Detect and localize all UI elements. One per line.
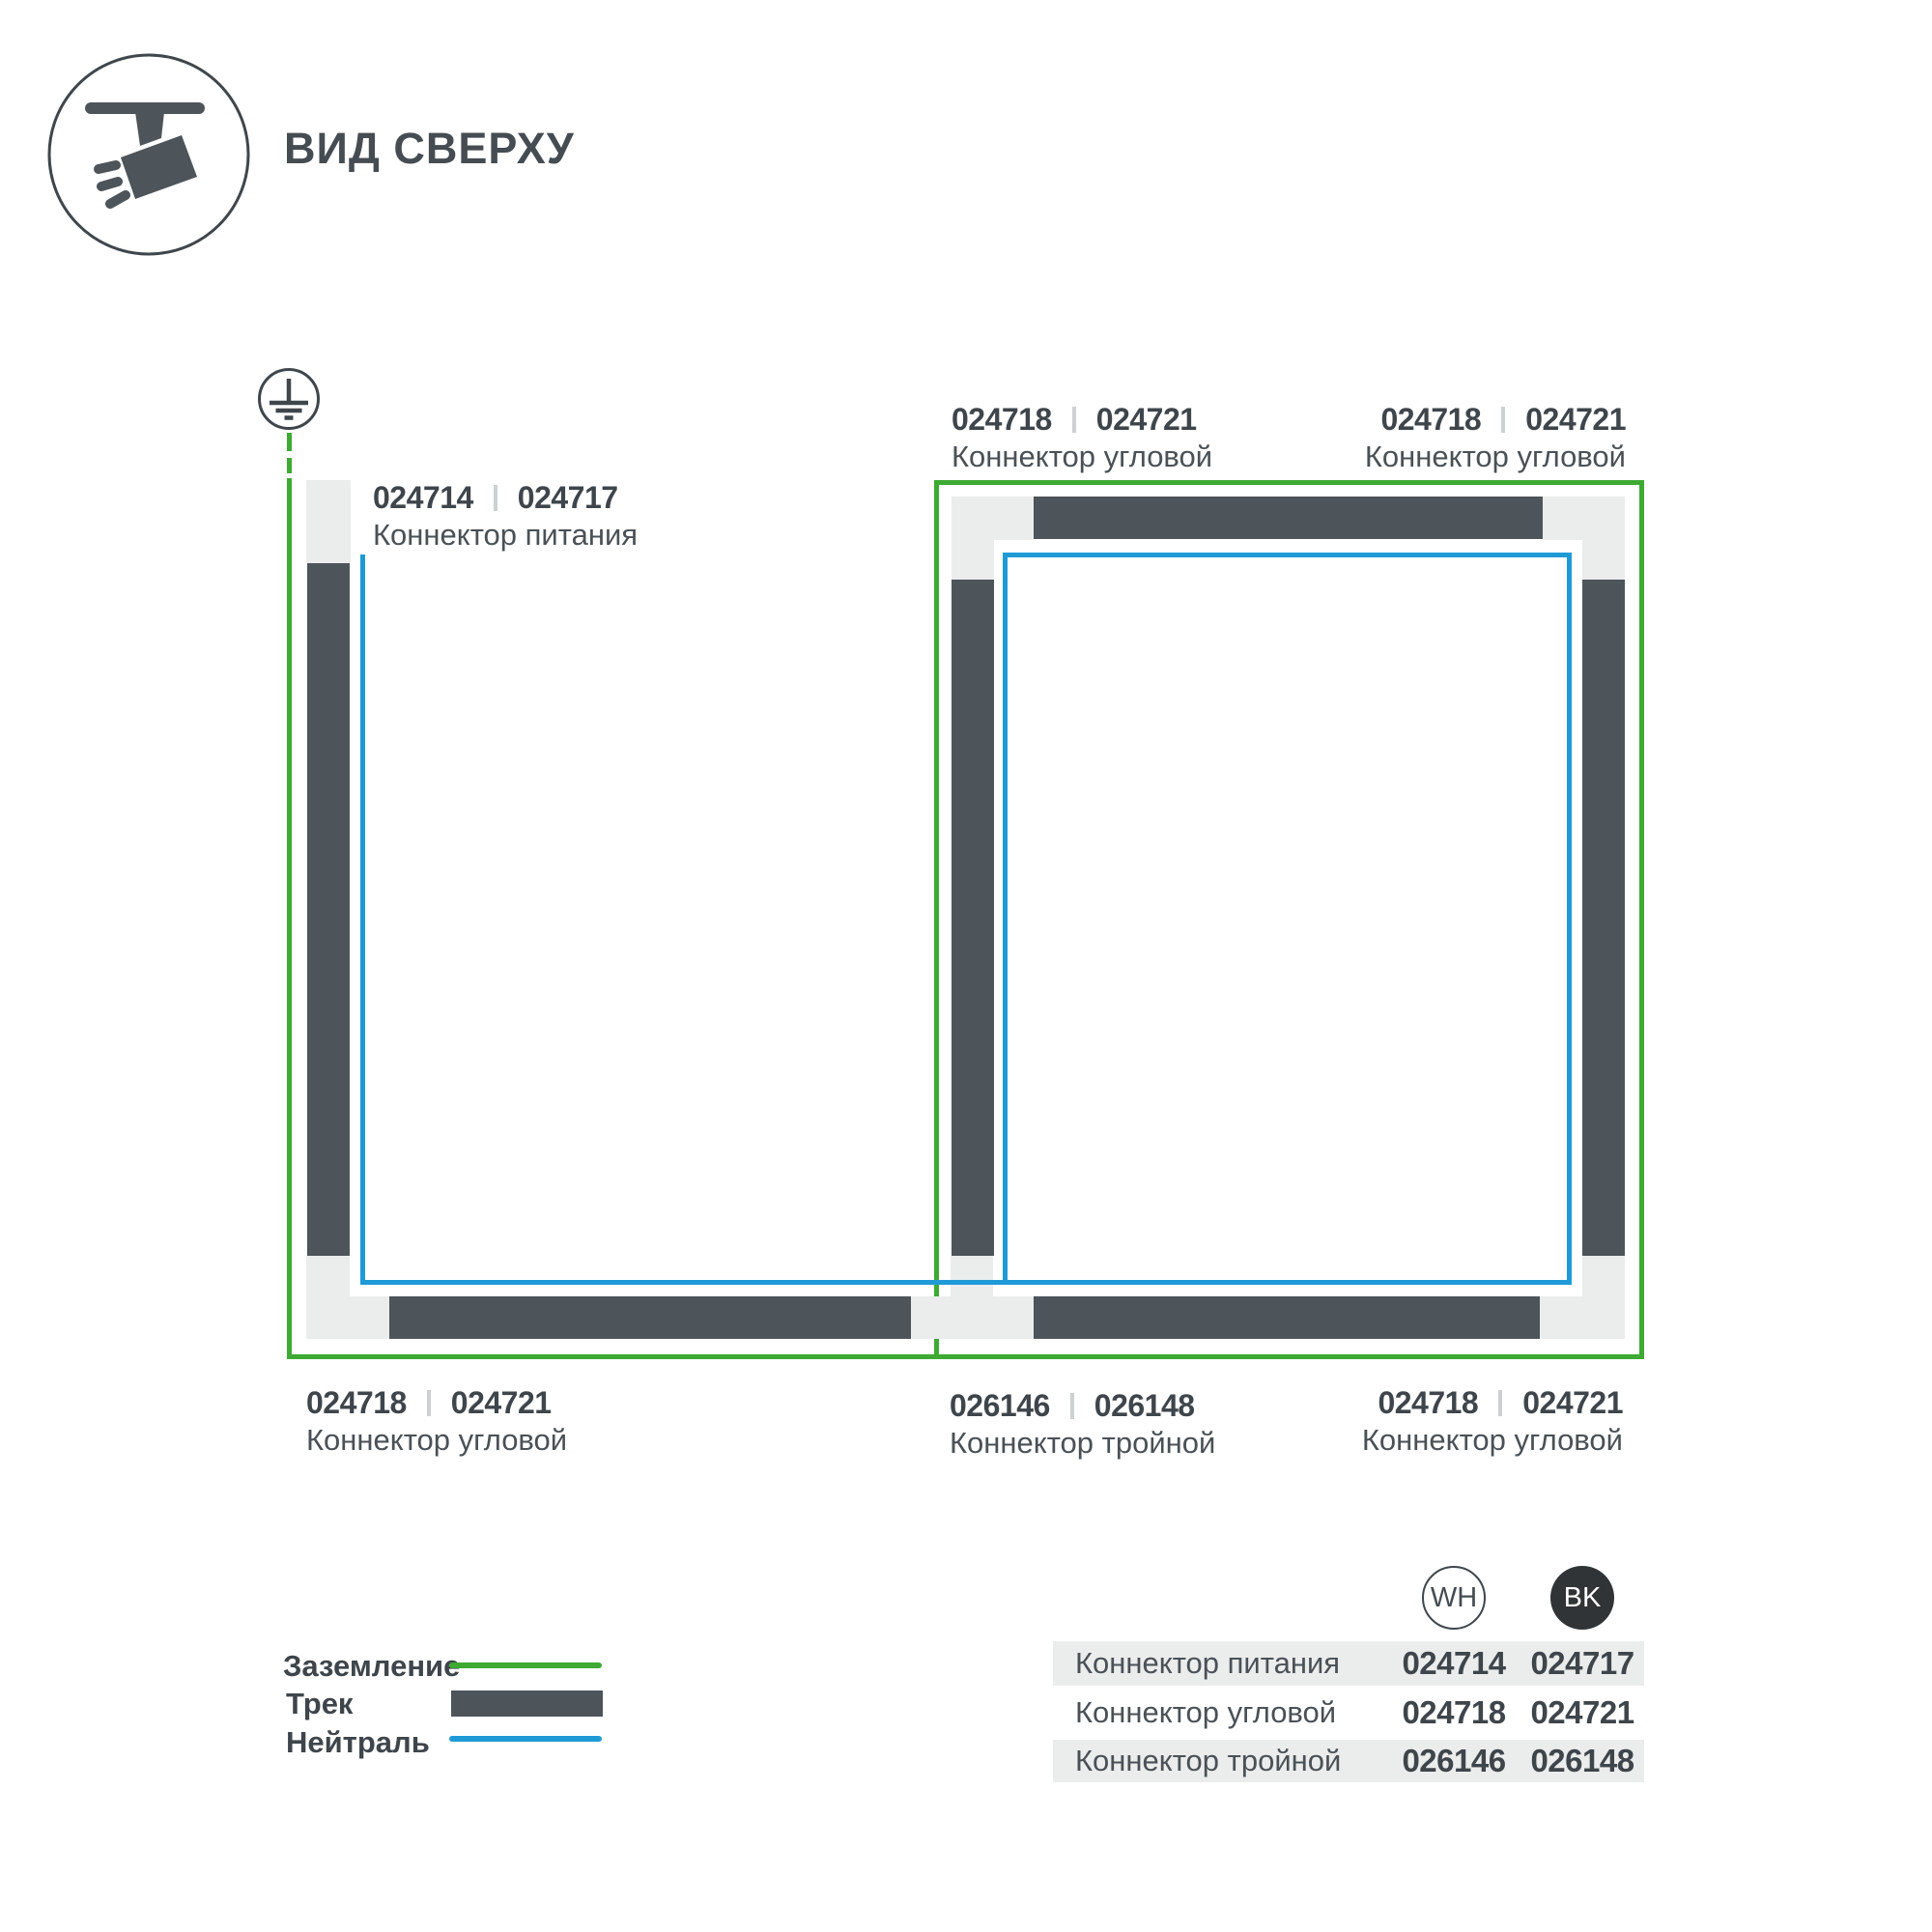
label-name: Коннектор угловой xyxy=(952,440,1212,474)
row-wh-code: 024718 xyxy=(1386,1694,1521,1731)
label-codes: 024714 024717 xyxy=(373,481,638,514)
table-row: Коннектор питания 024714 024717 xyxy=(1053,1641,1644,1686)
legend-swatch-track xyxy=(451,1690,603,1717)
color-wh-badge: WH xyxy=(1422,1566,1486,1630)
table-row: Коннектор угловой 024718 024721 xyxy=(1053,1689,1644,1737)
row-wh-code: 024714 xyxy=(1386,1645,1521,1682)
page: ВИД СВЕРХУ 024714 0247 xyxy=(0,0,1932,1932)
label-name: Коннектор угловой xyxy=(1362,1423,1623,1458)
label-triple-connector: 026146 026148 Коннектор тройной xyxy=(950,1389,1215,1461)
code-bk: 024721 xyxy=(1522,1385,1623,1421)
code-bk: 024721 xyxy=(1525,402,1626,438)
track-right-vertical xyxy=(1582,580,1625,1256)
label-codes: 024718 024721 xyxy=(1365,403,1626,436)
label-corner-connector-bottom-right: 024718 024721 Коннектор угловой xyxy=(1362,1386,1623,1458)
label-name: Коннектор угловой xyxy=(1365,440,1626,474)
label-name: Коннектор питания xyxy=(373,518,638,553)
ground-icon xyxy=(257,367,321,431)
triple-connector-stub xyxy=(951,1256,993,1298)
code-divider xyxy=(1501,407,1505,433)
corner-connector-bottom-right-arm-v xyxy=(1582,1256,1625,1339)
table-row: Коннектор тройной 026146 026148 xyxy=(1053,1740,1644,1782)
label-codes: 026146 026148 xyxy=(950,1389,1215,1422)
code-wh: 024714 xyxy=(373,480,473,516)
triple-connector-bar xyxy=(911,1296,1034,1339)
corner-connector-bottom-left-arm-h xyxy=(306,1296,389,1339)
code-wh: 024718 xyxy=(952,402,1052,438)
color-bk-badge: BK xyxy=(1550,1566,1614,1630)
track-light-icon xyxy=(43,48,255,261)
color-bk-label: BK xyxy=(1564,1582,1602,1614)
track-bottom-left xyxy=(389,1296,911,1339)
label-codes: 024718 024721 xyxy=(306,1386,567,1419)
code-bk: 024721 xyxy=(451,1385,552,1421)
track-bottom-right xyxy=(1034,1296,1540,1339)
label-codes: 024718 024721 xyxy=(1362,1386,1623,1419)
page-title: ВИД СВЕРХУ xyxy=(284,124,575,174)
row-wh-code: 026146 xyxy=(1386,1743,1521,1779)
code-bk: 024721 xyxy=(1096,402,1197,438)
legend-swatch-neutral xyxy=(449,1736,602,1742)
ground-line-dash-1 xyxy=(287,433,292,451)
code-bk: 026148 xyxy=(1094,1388,1195,1424)
label-name: Коннектор тройной xyxy=(950,1426,1215,1461)
code-wh: 026146 xyxy=(950,1388,1050,1424)
label-codes: 024718 024721 xyxy=(952,403,1212,436)
corner-connector-top-right-arm-v xyxy=(1582,497,1625,580)
legend-label-neutral: Нейтраль xyxy=(286,1725,430,1760)
code-divider xyxy=(1072,407,1076,433)
color-wh-label: WH xyxy=(1431,1582,1477,1614)
code-wh: 024718 xyxy=(306,1385,407,1421)
row-name: Коннектор тройной xyxy=(1053,1744,1341,1778)
code-wh: 024718 xyxy=(1378,1385,1478,1421)
row-bk-code: 026148 xyxy=(1515,1743,1650,1779)
label-corner-connector-top-right: 024718 024721 Коннектор угловой xyxy=(1365,403,1626,474)
legend-swatch-ground xyxy=(449,1662,602,1668)
label-corner-connector-top-mid: 024718 024721 Коннектор угловой xyxy=(952,403,1212,474)
neutral-line-left-vertical xyxy=(360,554,365,1285)
legend-label-track: Трек xyxy=(286,1687,353,1721)
code-divider xyxy=(427,1390,431,1416)
row-name: Коннектор угловой xyxy=(1053,1695,1336,1730)
code-divider xyxy=(494,485,497,511)
code-wh: 024718 xyxy=(1380,402,1481,438)
ground-line-dash-2 xyxy=(287,458,292,473)
track-inner-left-vertical xyxy=(952,580,994,1256)
label-power-connector: 024714 024717 Коннектор питания xyxy=(373,481,638,553)
code-divider xyxy=(1498,1390,1502,1416)
neutral-loop-right xyxy=(1003,553,1572,1285)
ground-line-left-vertical xyxy=(287,478,292,1359)
power-connector-block xyxy=(306,480,351,563)
code-divider xyxy=(1070,1393,1074,1419)
row-bk-code: 024721 xyxy=(1515,1694,1650,1731)
label-name: Коннектор угловой xyxy=(306,1423,567,1458)
code-bk: 024717 xyxy=(518,480,618,516)
row-name: Коннектор питания xyxy=(1053,1646,1340,1681)
row-bk-code: 024717 xyxy=(1515,1645,1650,1682)
track-left-vertical xyxy=(307,563,350,1256)
corner-connector-top-left-arm-v xyxy=(952,497,994,580)
track-top xyxy=(1034,497,1543,539)
legend-label-ground: Заземление xyxy=(283,1649,460,1684)
label-corner-connector-bottom-left: 024718 024721 Коннектор угловой xyxy=(306,1386,567,1458)
